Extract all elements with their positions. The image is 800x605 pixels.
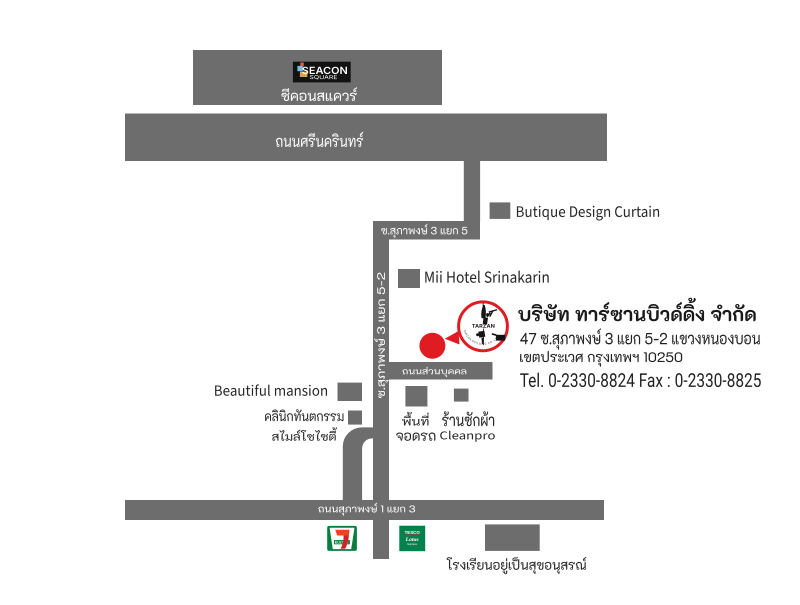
svg-text:Lotus: Lotus bbox=[405, 537, 419, 543]
svg-text:TESCO: TESCO bbox=[405, 530, 421, 535]
svg-text:Express: Express bbox=[408, 542, 418, 546]
